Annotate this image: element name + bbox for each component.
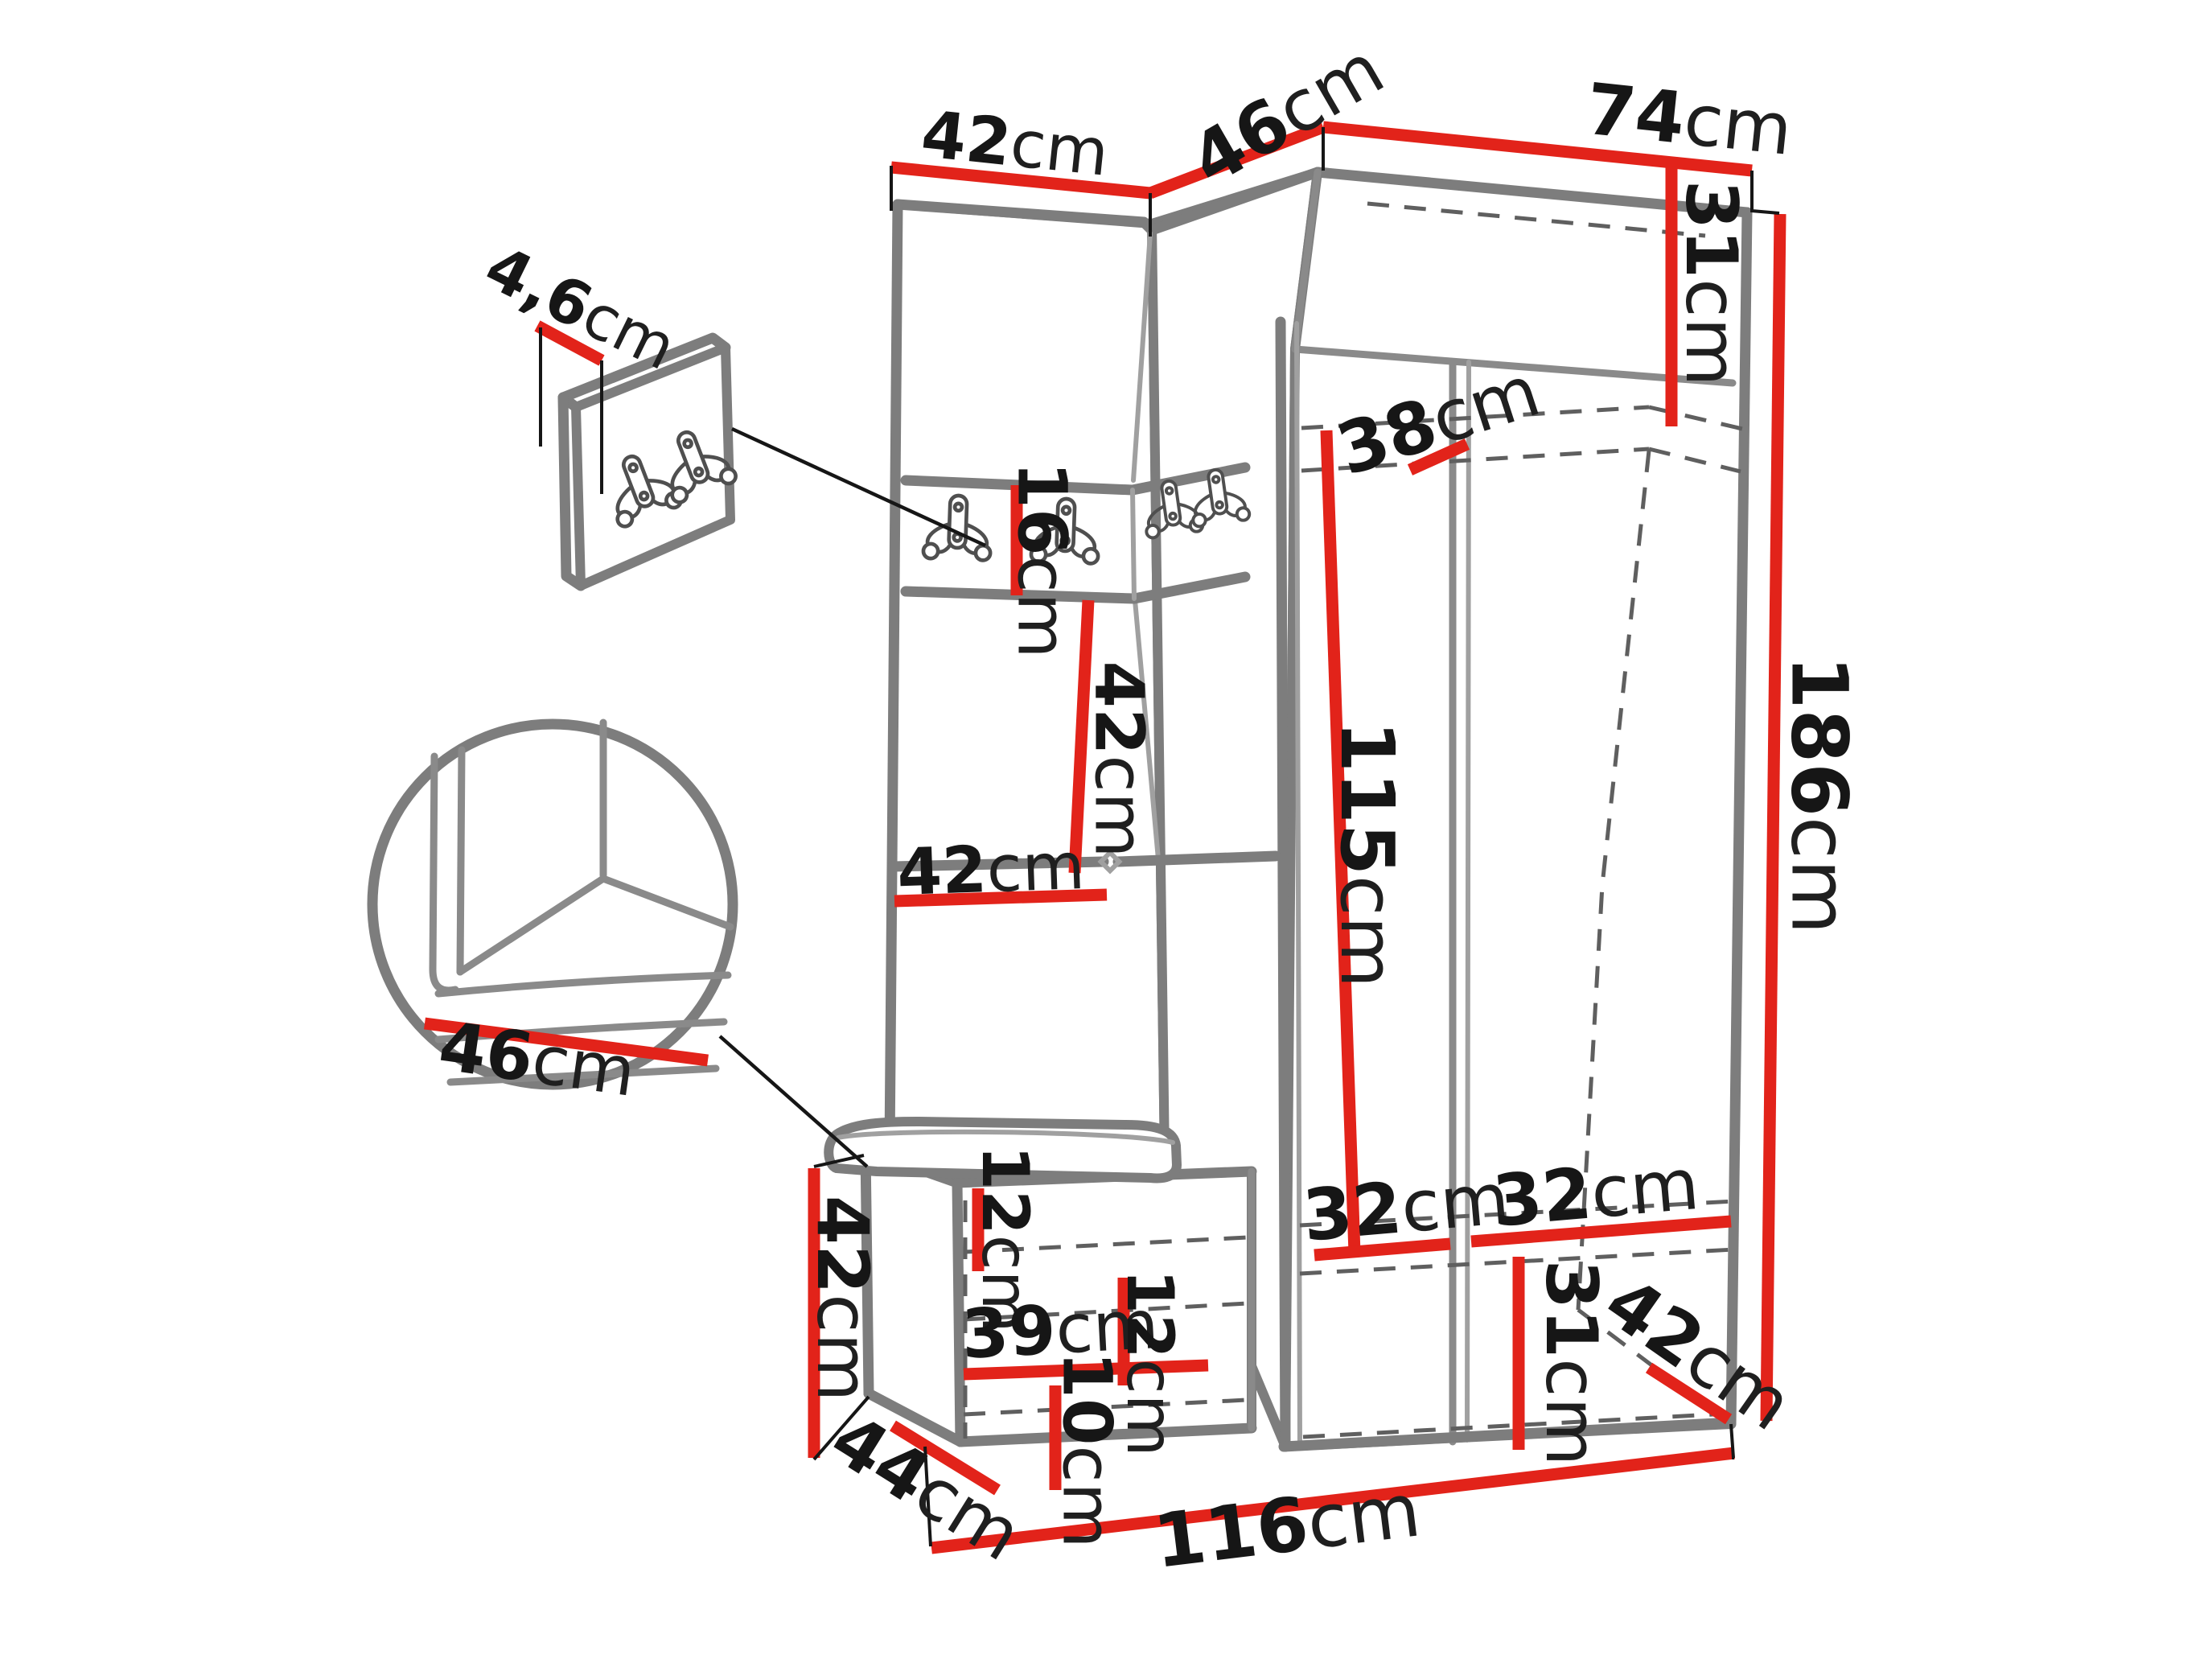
label-31cm-top: 31cm [1670,180,1753,387]
label-4-6cm: 4,6cm [475,231,687,384]
detail-circle-connector-line [720,1036,867,1167]
detail-backrest-left-inner [460,750,462,972]
hook-strip-bend [1133,490,1134,599]
furniture-dimension-diagram: 42cm 46cm 74cm 4,6cm 16cm 42cm 42cm 31cm… [0,0,2212,1659]
label-186cm: 186cm [1774,656,1864,935]
label-42cm-shelf: 42cm [896,829,1086,910]
label-116cm: 116cm [1149,1467,1425,1585]
diagram-canvas: 42cm 46cm 74cm 4,6cm 16cm 42cm 42cm 31cm… [0,0,2212,1659]
label-16cm: 16cm [1003,462,1082,659]
door-divider-right [1467,362,1469,1440]
label-10cm: 10cm [1048,1352,1127,1549]
label-42cm-bench: 42cm [801,1196,884,1402]
tick-74-right-bracket [1752,171,1779,213]
label-115cm: 115cm [1324,721,1410,988]
wardrobe-left-edge-outer [1281,322,1285,1447]
wardrobe-left-edge-inner [1297,323,1300,1445]
tick-186-bottom-bracket [1731,1424,1734,1458]
label-31cm-bottom: 31cm [1530,1260,1613,1467]
label-42cm-panel: 42cm [1080,661,1159,858]
